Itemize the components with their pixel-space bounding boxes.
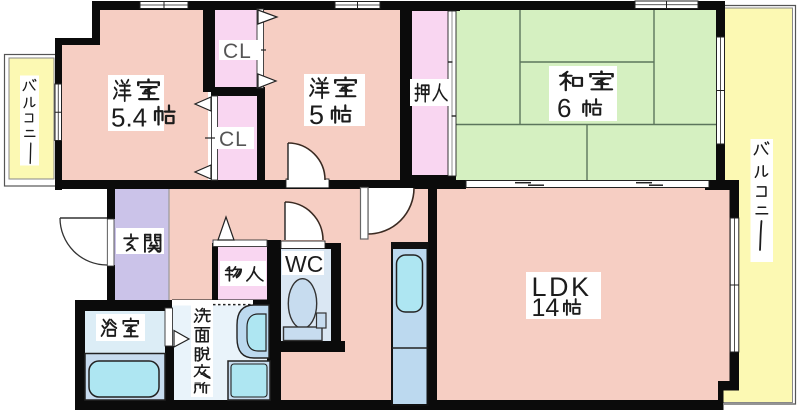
svg-text:6: 6: [557, 93, 571, 123]
svg-text:5.4: 5.4: [111, 103, 147, 133]
svg-text:CL: CL: [219, 128, 248, 151]
svg-text:14: 14: [532, 294, 560, 322]
svg-text:5: 5: [309, 100, 324, 130]
svg-text:WC: WC: [285, 251, 323, 277]
svg-text:CL: CL: [223, 40, 252, 63]
